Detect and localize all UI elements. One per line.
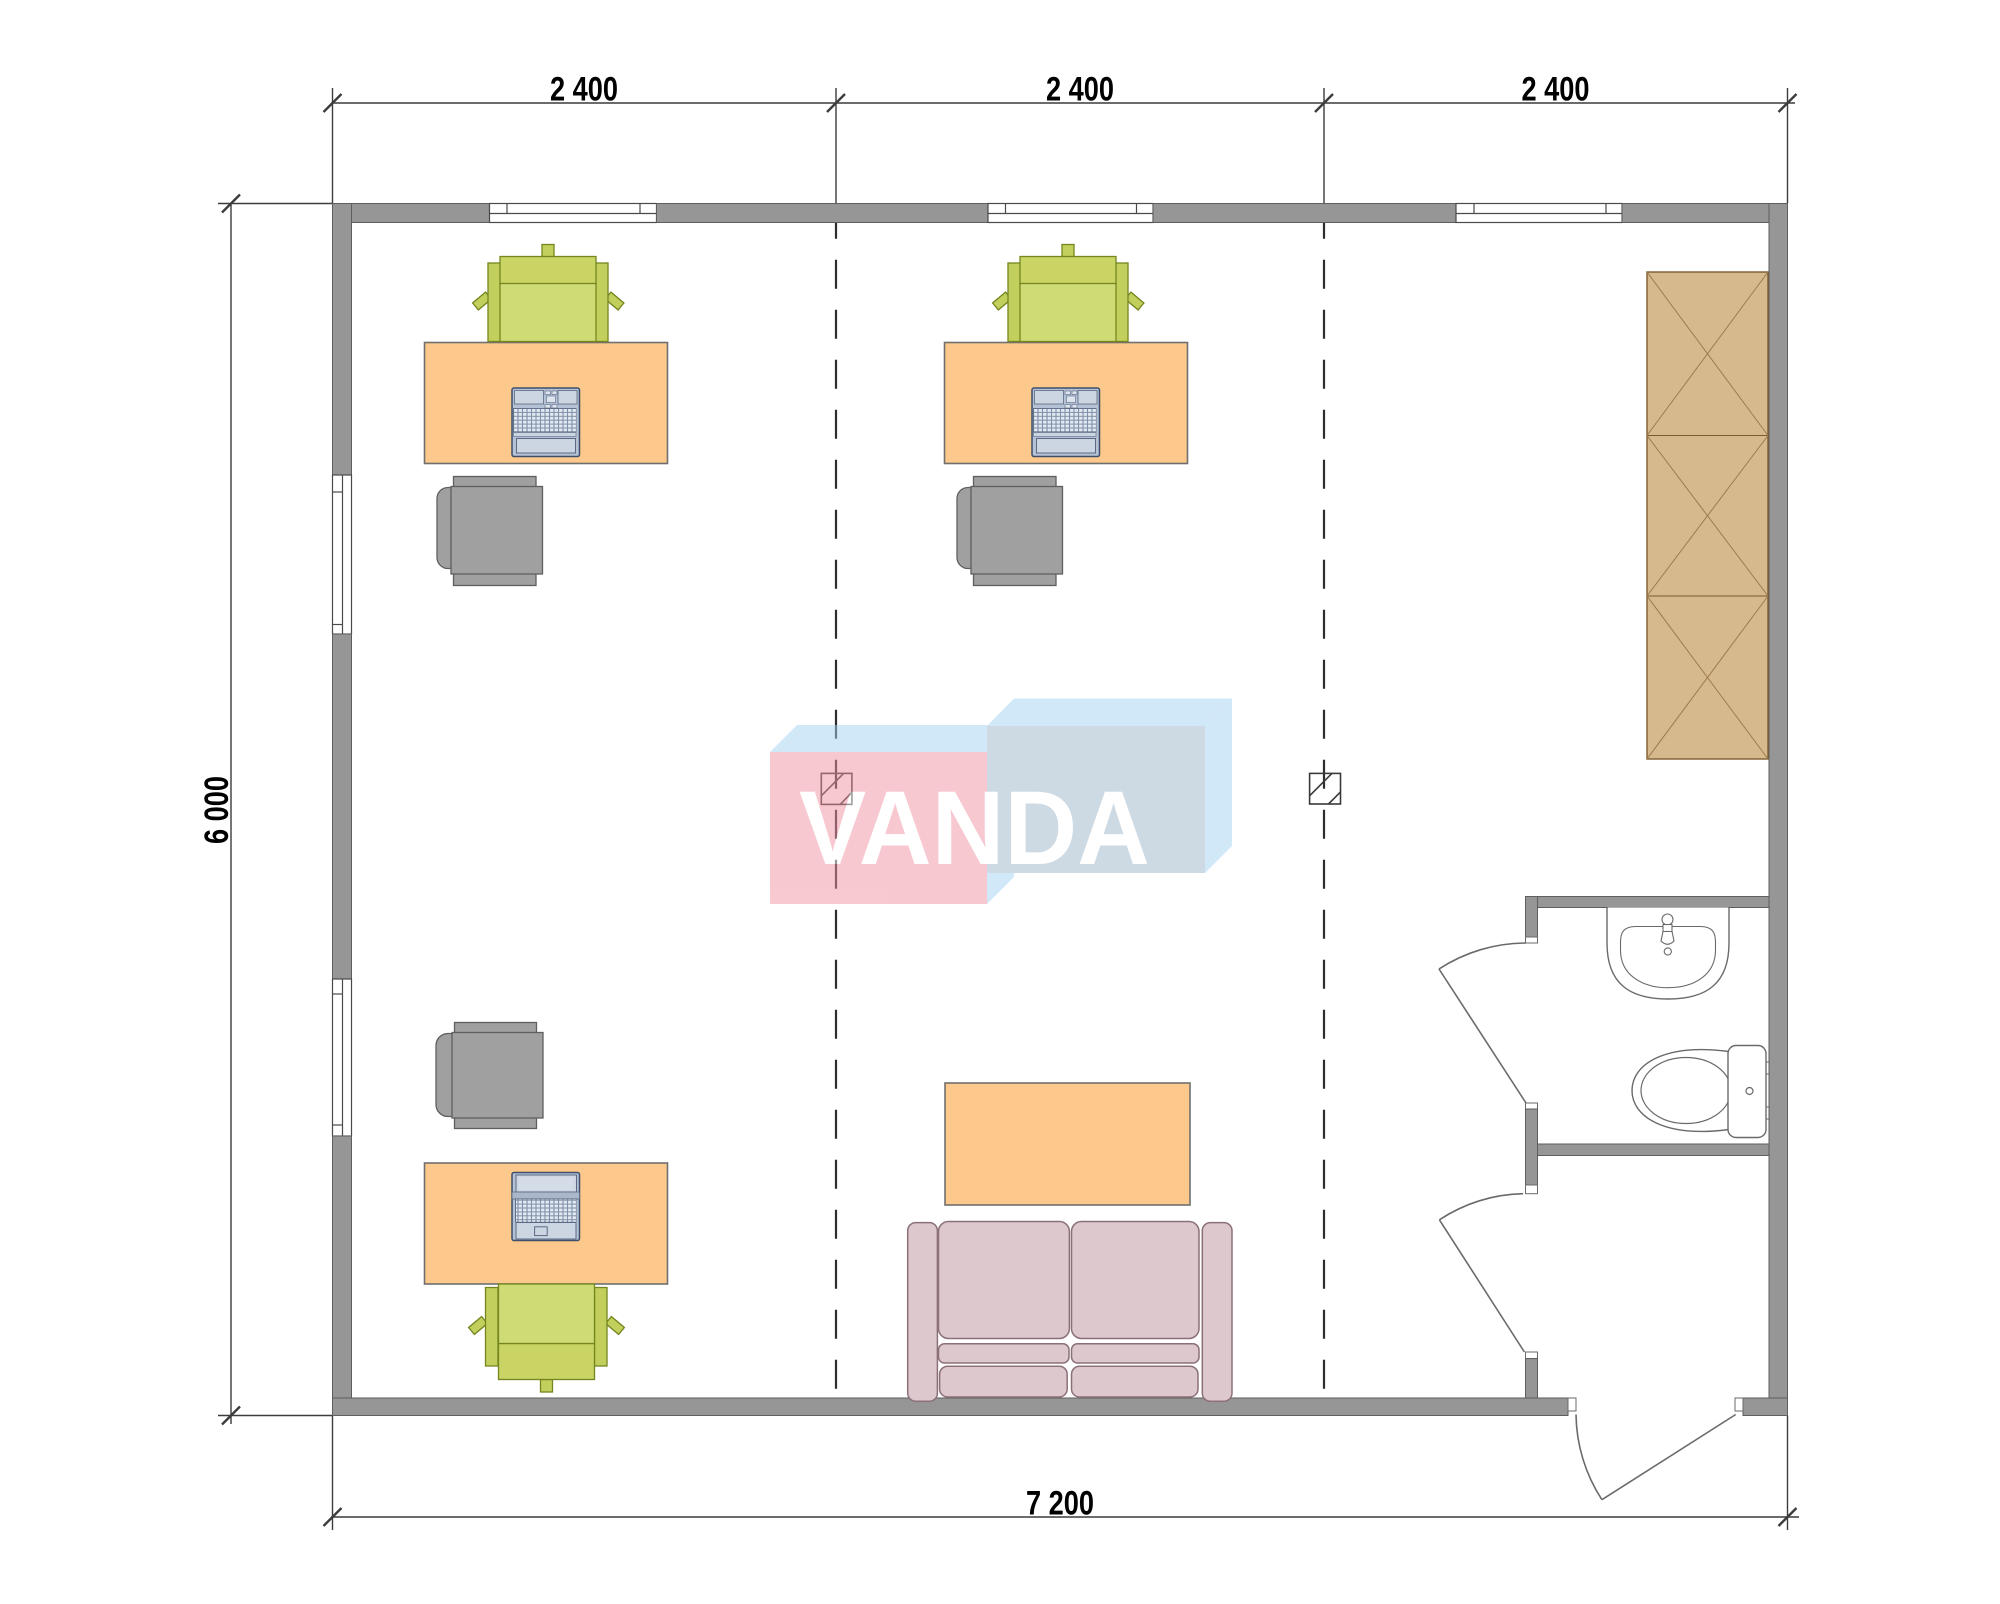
- svg-text:7 200: 7 200: [1026, 1485, 1094, 1523]
- svg-text:VANDA: VANDA: [799, 770, 1150, 887]
- svg-text:6 000: 6 000: [198, 776, 236, 844]
- svg-text:2 400: 2 400: [1522, 71, 1590, 109]
- svg-text:2 400: 2 400: [1046, 71, 1114, 109]
- svg-text:2 400: 2 400: [550, 71, 618, 109]
